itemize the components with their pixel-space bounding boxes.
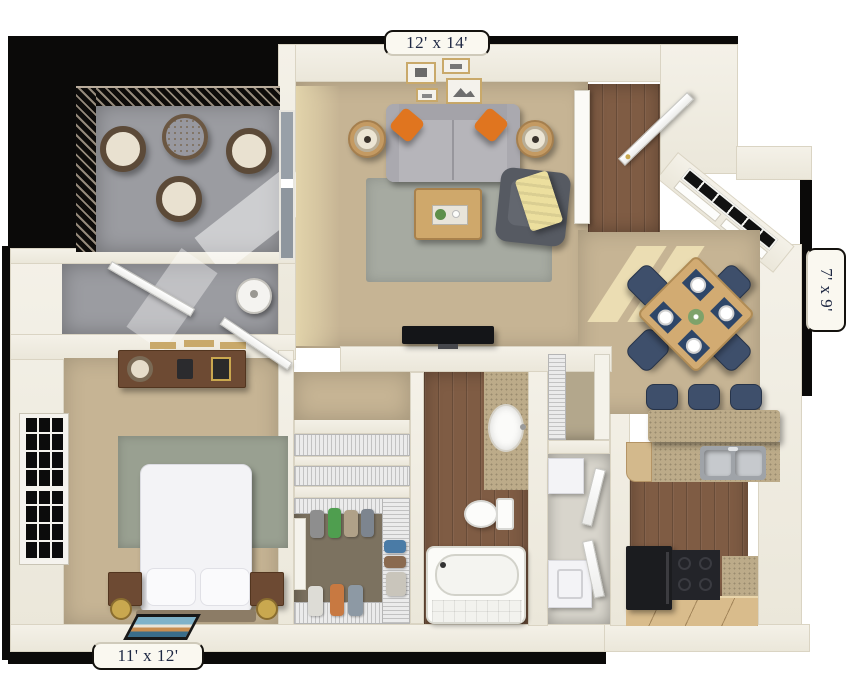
patio-railing-top [76, 86, 280, 106]
centerpiece-flowers [685, 306, 708, 329]
dresser [118, 350, 246, 388]
sink-basin-left [704, 450, 731, 476]
hanging-clothes [384, 540, 406, 553]
table-lamp-right [522, 126, 548, 152]
gallery-frame-4 [446, 78, 482, 104]
vanity-sink [488, 404, 524, 452]
lamp-finial [364, 136, 371, 143]
nightstand-lamp-right [256, 598, 278, 620]
dryer-door [557, 569, 583, 599]
hanging-clothes [361, 509, 374, 537]
hall-shelf-upper [294, 434, 410, 456]
living-room-dimension-label: 12' x 14' [406, 33, 468, 53]
toilet-bowl [464, 500, 498, 528]
bedroom-window [20, 414, 68, 564]
kitchen-sink [700, 446, 766, 480]
hall-shelf-lower [294, 466, 410, 486]
sink-faucet [728, 447, 738, 451]
dresser-clock [211, 357, 231, 381]
nightstand-lamp-left [110, 598, 132, 620]
tv [402, 326, 494, 344]
sofa-cushion-divider [452, 120, 454, 180]
sink-basin-right [735, 450, 762, 476]
closet-divider-1 [294, 456, 410, 466]
breakfast-bar-counter [648, 410, 780, 442]
bed-pillow-right [200, 568, 250, 606]
bedroom-dimension-label: 11' x 12' [118, 646, 179, 666]
wall-bottom-right [604, 624, 810, 652]
water-heater-pipe [250, 290, 258, 298]
burner [678, 557, 691, 570]
frame-art [422, 94, 432, 98]
patio-chair-right [226, 128, 272, 174]
table-lamp-left [354, 126, 380, 152]
closet-wall-panel [294, 518, 306, 590]
dresser-lamp [127, 356, 153, 382]
hanging-clothes [308, 586, 323, 616]
range-cooktop [672, 550, 720, 600]
wall-closet-top [294, 418, 410, 434]
dining-dimension-label: 7' x 9' [816, 268, 836, 312]
tub-tile-floor [432, 600, 522, 622]
shoe-shelf-items [386, 572, 406, 596]
wall-closet-right [410, 372, 424, 624]
gallery-frame-1 [406, 62, 436, 84]
patio-table [162, 114, 208, 160]
vanity-faucet [520, 424, 526, 430]
patio-slider-door [279, 110, 295, 260]
closet-divider-2 [294, 486, 410, 498]
tv-stand [438, 344, 458, 349]
hanging-clothes [348, 585, 363, 616]
bathtub [426, 546, 526, 624]
washer [548, 458, 584, 494]
lamp-finial [532, 136, 539, 143]
wall-decor [220, 342, 246, 349]
floor-plan: 12' x 14' 7' x 9' 11' x 12' [0, 0, 859, 699]
coffee-table [414, 188, 482, 240]
door-knob [624, 153, 631, 160]
hanging-clothes [310, 510, 324, 538]
fridge-handle [666, 552, 669, 604]
toilet-tank [496, 498, 514, 530]
frame-art [453, 88, 475, 97]
hanging-clothes [384, 556, 406, 568]
counter-block [722, 556, 758, 598]
wall-decor [150, 342, 176, 349]
window-center-rail [24, 486, 64, 491]
patio-railing-left [76, 86, 96, 252]
wall-decor [184, 340, 214, 347]
patio-chair-left [100, 126, 146, 172]
living-room-dimension-tab: 12' x 14' [384, 30, 490, 56]
linen-door-frame [594, 354, 610, 440]
wall-notch-top [736, 146, 812, 180]
hanging-clothes [344, 510, 358, 537]
hallway-floor [294, 372, 410, 420]
gallery-frame-3 [416, 88, 438, 102]
entry-closet-panel [574, 90, 590, 224]
linen-shelves [548, 354, 566, 440]
bar-stool-2 [688, 384, 720, 410]
dresser-item [177, 359, 193, 379]
frame-art [415, 68, 427, 77]
wall-tv [340, 346, 612, 372]
tub-basin [435, 554, 519, 596]
dining-dimension-tab: 7' x 9' [806, 248, 846, 332]
burner [678, 578, 691, 591]
bar-stool-1 [646, 384, 678, 410]
table-vase [452, 210, 460, 218]
burner [699, 557, 712, 570]
bar-stool-3 [730, 384, 762, 410]
refrigerator [626, 546, 672, 610]
burner [699, 578, 712, 591]
tub-drain [440, 562, 446, 568]
wall-laundry-mid [548, 440, 610, 454]
dryer [548, 560, 592, 608]
patio-chair-bottom [156, 176, 202, 222]
gallery-frame-2 [442, 58, 470, 74]
bedroom-dimension-tab: 11' x 12' [92, 642, 204, 670]
frame-art [450, 64, 462, 69]
wall-bath-right [528, 346, 548, 626]
hanging-clothes [328, 508, 341, 538]
hanging-clothes [330, 584, 344, 616]
kitchen-cabinet-left [626, 442, 652, 482]
bed-pillow-left [146, 568, 196, 606]
living-sun-patch [296, 86, 340, 346]
table-plant [435, 209, 446, 220]
